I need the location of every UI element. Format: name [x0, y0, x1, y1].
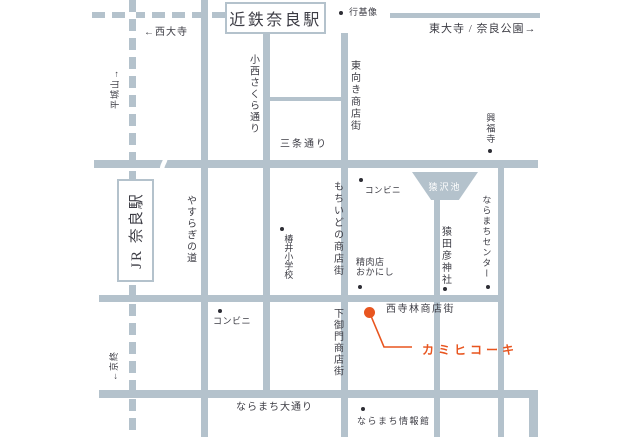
station-box-kintetsu-nara: 近鉄奈良駅: [225, 2, 326, 34]
street-nishiterabayashi-shotengai: 西寺林商店街: [386, 304, 455, 316]
direction-saidaiji: ←西大寺: [144, 27, 188, 39]
nara-access-map: 猿沢池 近鉄奈良駅 JR 奈良駅 ←西大寺 平城山→ 東大寺 / 奈良公園→ ←…: [0, 0, 640, 440]
poi-dot-naramachi-center: [486, 285, 490, 289]
street-sanjo-dori: 三条通り: [280, 139, 328, 151]
street-shimomikado-shotengai: 下御門商店街: [331, 308, 343, 377]
direction-narayama: 平城山→: [108, 67, 120, 111]
destination-label: カミヒコーキ: [422, 341, 518, 358]
poi-naramachi-center: ならまちセンター: [481, 195, 491, 279]
poi-gyoki-statue: 行基像: [349, 7, 378, 17]
poi-dot-kofukuji: [488, 149, 492, 153]
poi-conbini-upper: コンビニ: [365, 186, 401, 196]
poi-seinikuten-line2: おかにし: [356, 267, 394, 277]
street-naramachi-odori: ならまち大通り: [236, 402, 313, 414]
jr-nara-station-label: JR 奈良駅: [125, 192, 146, 269]
destination-dot-icon: [364, 307, 375, 318]
road-break-icon: [162, 155, 166, 175]
poi-dot-conbini-lower: [218, 309, 222, 313]
direction-todaiji-nara-park: 東大寺 / 奈良公園→: [429, 23, 537, 36]
poi-dot-tsubai-elementary: [280, 227, 284, 231]
poi-dot-sarutahiko: [443, 287, 447, 291]
direction-kyobate: ←京終: [107, 349, 119, 383]
poi-dot-seinikuten: [358, 285, 362, 289]
poi-tsubai-elementary: 椿井小学校: [283, 234, 293, 279]
poi-conbini-lower: コンビニ: [213, 316, 251, 326]
poi-dot-conbini-upper: [359, 178, 363, 182]
poi-kofukuji: 興福寺: [485, 113, 495, 145]
map-overlay: [0, 0, 640, 440]
station-box-jr-nara: JR 奈良駅: [117, 179, 154, 282]
street-konishi-sakura-dori: 小西さくら通り: [247, 54, 259, 135]
poi-dot-gyoki-statue: [339, 11, 343, 15]
poi-seinikuten-okanishi: 精肉店 おかにし: [356, 257, 394, 278]
street-higashimuki-shotengai: 東向き商店街: [348, 60, 360, 132]
poi-dot-naramachi-info: [361, 407, 365, 411]
destination-leader-line: [371, 316, 412, 347]
kintetsu-nara-station-label: 近鉄奈良駅: [229, 6, 322, 30]
poi-seinikuten-line1: 精肉店: [356, 257, 394, 267]
street-mochiidono-shotengai: もちいどの商店街: [331, 181, 343, 277]
poi-naramachi-info: ならまち情報館: [357, 416, 431, 426]
poi-sarutahiko-shrine: 猿田彦神社: [439, 226, 451, 286]
street-yasuragi-no-michi: やすらぎの道: [184, 195, 196, 264]
